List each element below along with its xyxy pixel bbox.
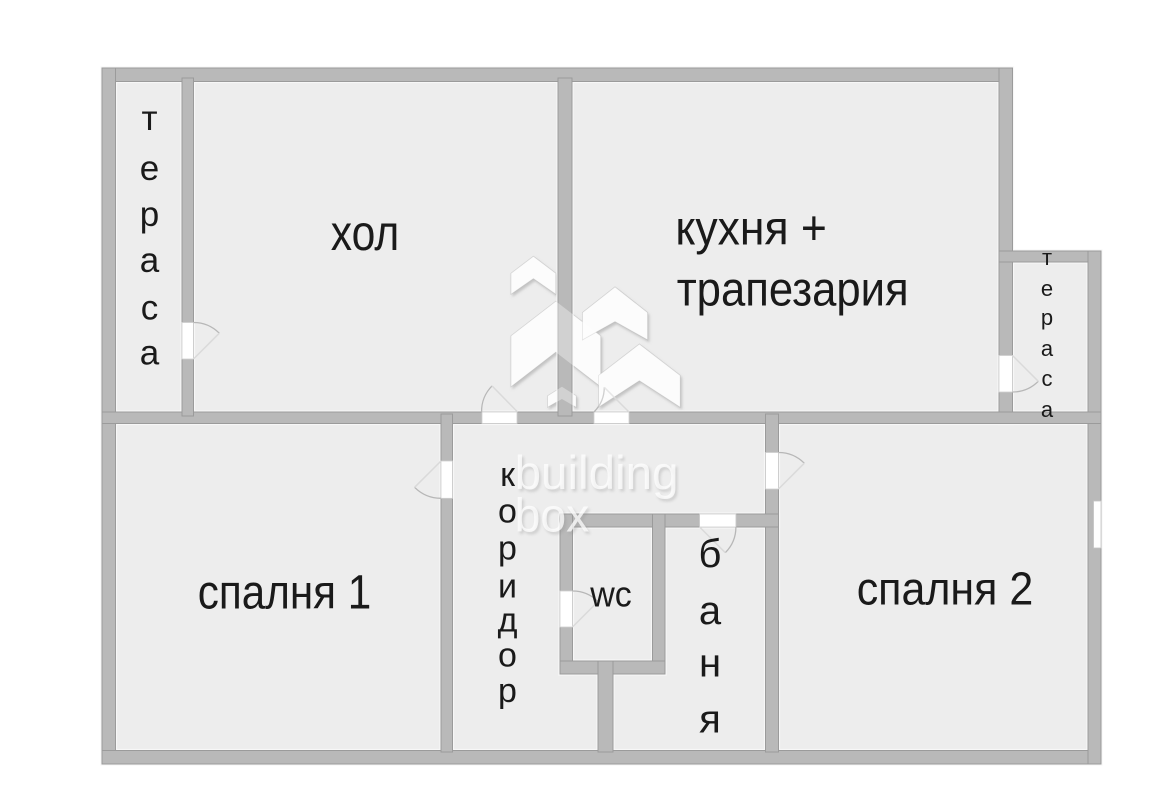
svg-text:wc: wc — [589, 574, 631, 615]
svg-text:а: а — [1041, 336, 1054, 361]
svg-text:р: р — [498, 672, 517, 710]
svg-text:а: а — [140, 334, 160, 373]
svg-text:с: с — [1042, 366, 1053, 391]
svg-text:спалня 1: спалня 1 — [198, 567, 372, 620]
svg-text:спалня 2: спалня 2 — [857, 563, 1034, 615]
svg-text:а: а — [1041, 397, 1054, 422]
svg-text:б: б — [699, 532, 722, 576]
svg-text:box: box — [515, 489, 590, 542]
svg-text:д: д — [498, 602, 518, 640]
svg-text:а: а — [699, 589, 722, 633]
svg-text:е: е — [140, 149, 159, 188]
svg-text:с: с — [141, 289, 159, 328]
svg-text:а: а — [140, 241, 160, 280]
svg-text:о: о — [498, 637, 517, 675]
svg-text:кухня +: кухня + — [675, 202, 827, 255]
svg-text:к: к — [500, 456, 516, 494]
svg-text:я: я — [699, 698, 721, 742]
svg-text:и: и — [498, 568, 517, 606]
svg-text:хол: хол — [331, 205, 400, 261]
svg-text:е: е — [1041, 276, 1053, 301]
svg-text:о: о — [498, 493, 517, 531]
svg-text:р: р — [140, 195, 159, 234]
svg-text:р: р — [1041, 305, 1053, 330]
svg-text:т: т — [141, 99, 157, 138]
svg-text:трапезария: трапезария — [677, 264, 909, 317]
svg-text:т: т — [1042, 245, 1052, 270]
svg-text:р: р — [498, 530, 517, 568]
svg-text:н: н — [699, 642, 721, 686]
